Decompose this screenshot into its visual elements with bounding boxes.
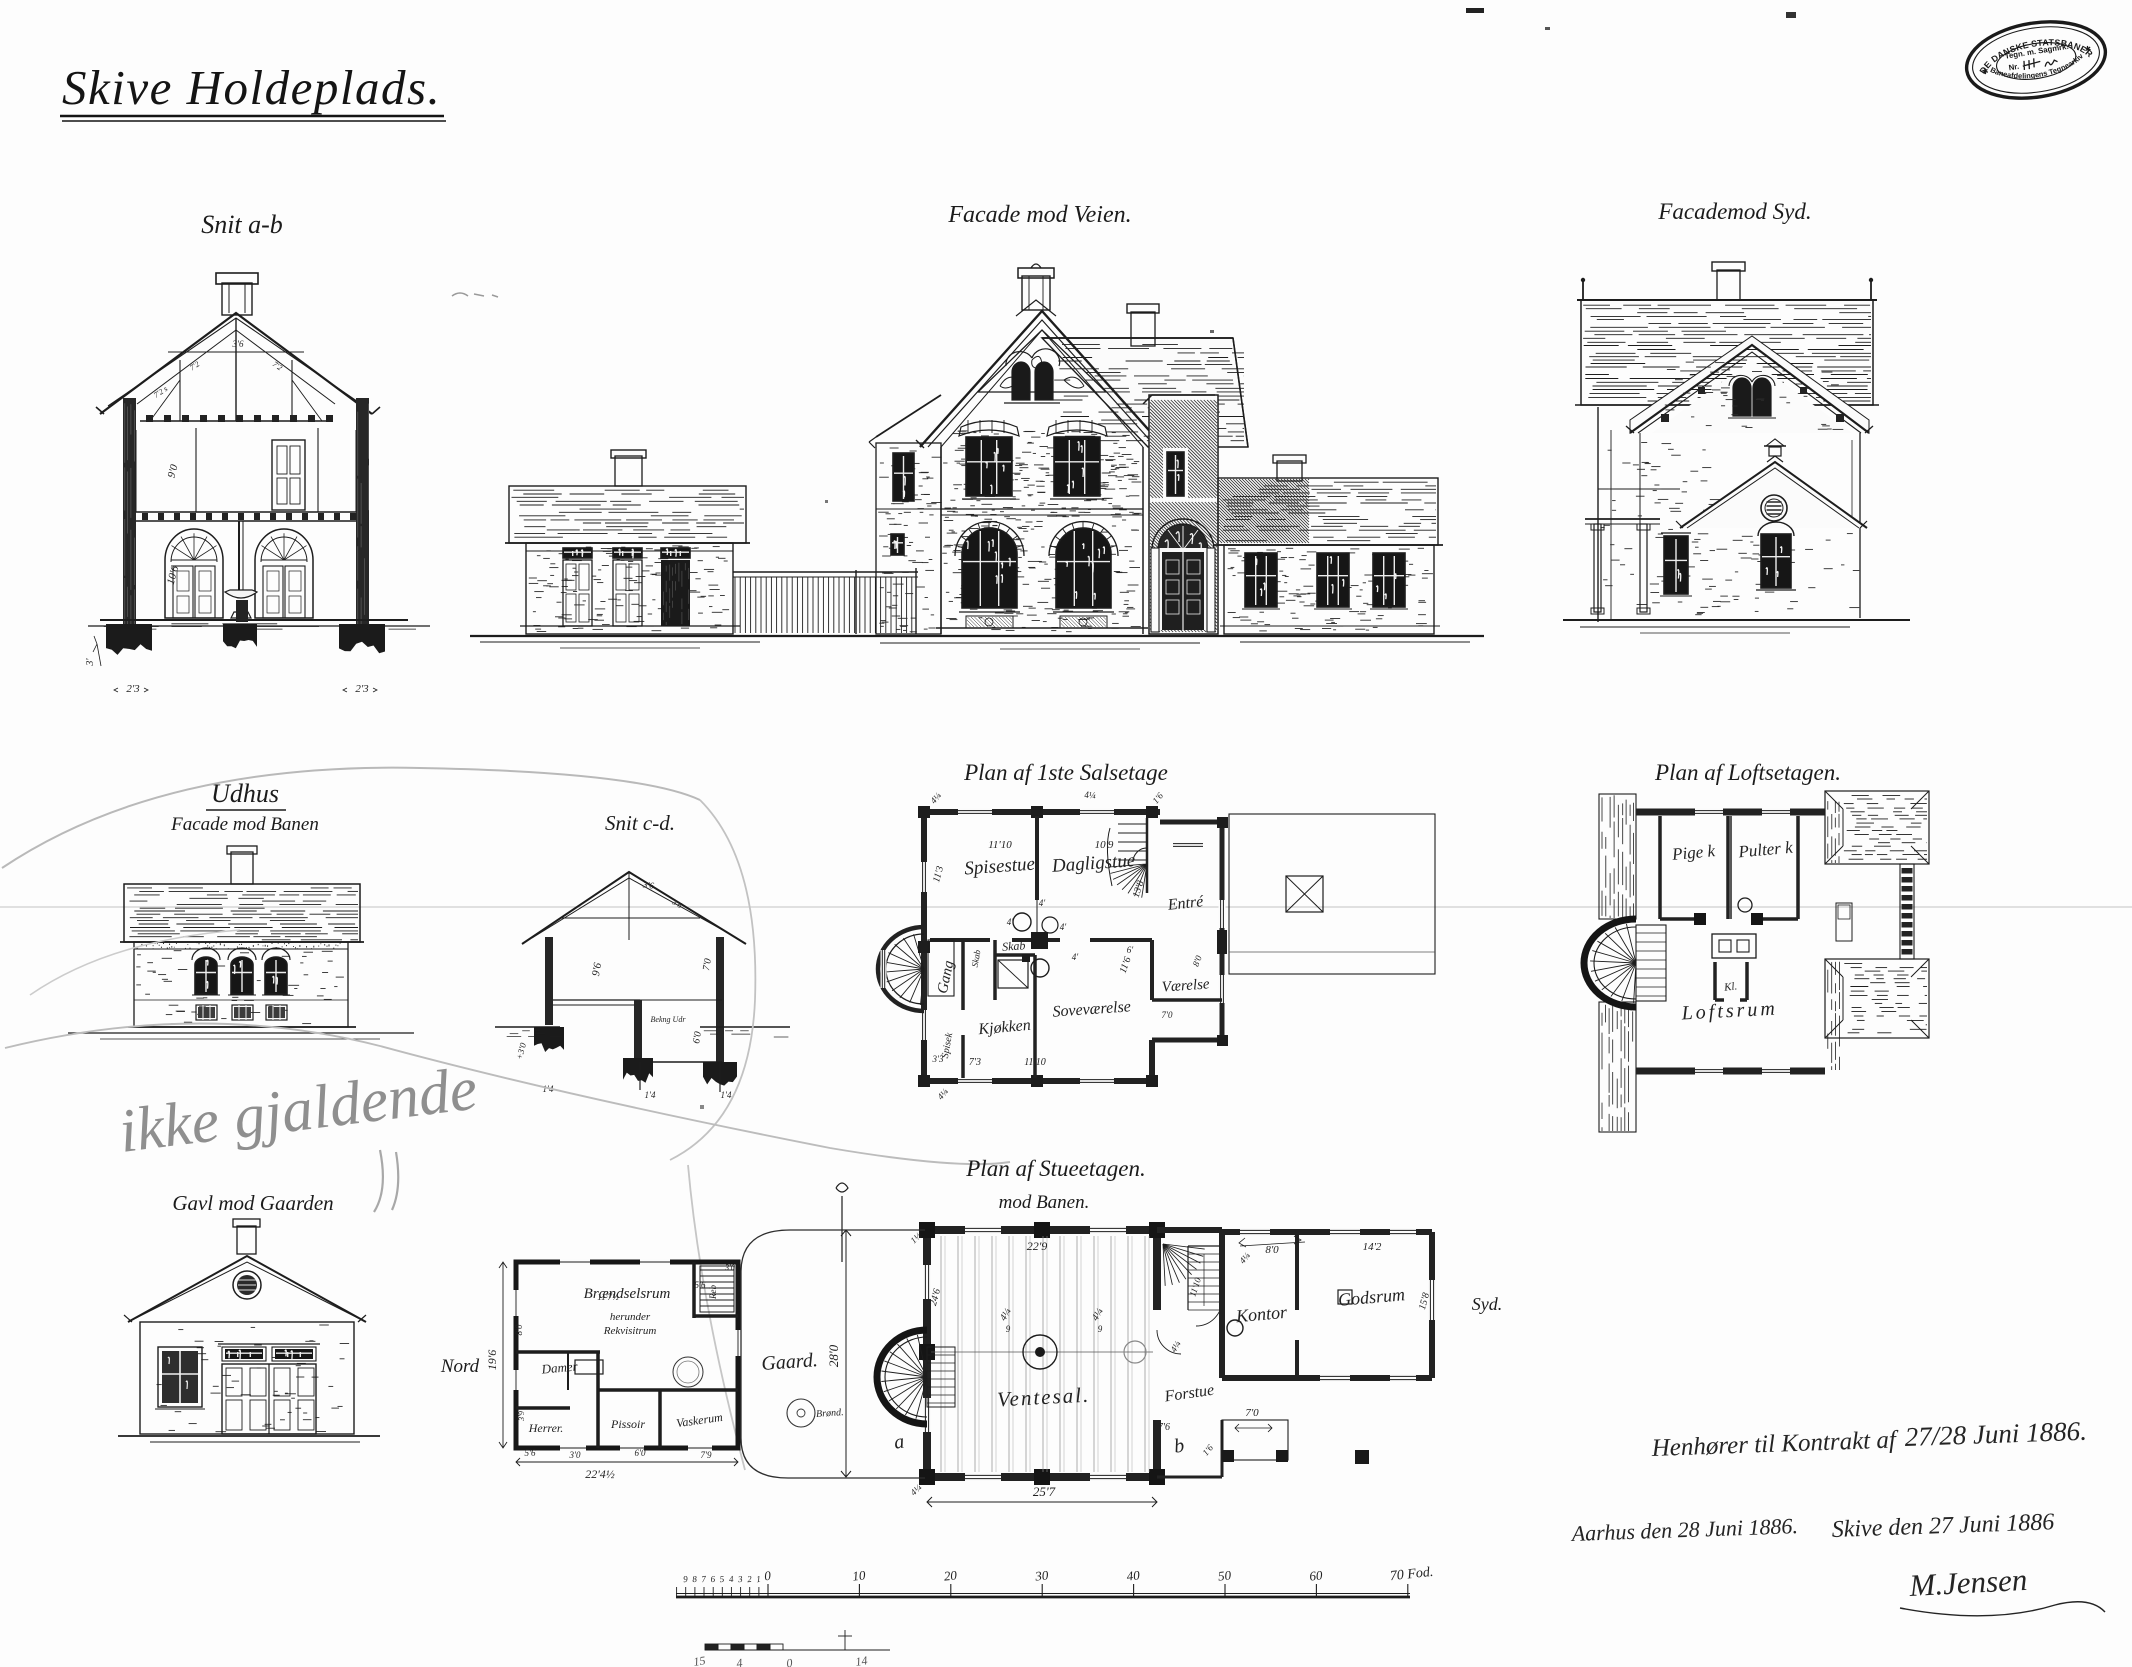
svg-text:Gaard.: Gaard. [761, 1349, 819, 1375]
svg-text:8'0: 8'0 [514, 1324, 524, 1335]
svg-text:Brønd.: Brønd. [816, 1407, 844, 1420]
svg-text:5'6: 5'6 [695, 1280, 706, 1290]
svg-text:1'4: 1'4 [721, 1090, 732, 1100]
svg-text:14: 14 [855, 1653, 869, 1667]
svg-text:3'3: 3'3 [932, 1054, 944, 1064]
svg-text:Snit c-d.: Snit c-d. [605, 811, 675, 835]
svg-text:7'0: 7'0 [1245, 1407, 1259, 1419]
svg-text:3'0: 3'0 [724, 1263, 735, 1272]
svg-text:10: 10 [852, 1567, 867, 1583]
svg-text:4': 4' [1060, 922, 1068, 932]
svg-text:6'0: 6'0 [691, 1031, 704, 1045]
svg-text:11'7½: 11'7½ [597, 1292, 619, 1302]
svg-text:M.Jensen: M.Jensen [1908, 1562, 2029, 1603]
svg-text:28'0: 28'0 [826, 1344, 841, 1367]
svg-text:Rekvisitrum: Rekvisitrum [603, 1325, 657, 1337]
svg-text:14'2: 14'2 [1363, 1241, 1382, 1253]
svg-text:Facade mod Banen: Facade mod Banen [170, 814, 319, 835]
svg-text:19'6: 19'6 [485, 1350, 499, 1371]
svg-text:30: 30 [1033, 1567, 1049, 1583]
svg-text:3'6: 3'6 [641, 879, 655, 891]
svg-text:Pige k: Pige k [1670, 841, 1716, 864]
svg-text:Syd.: Syd. [1472, 1294, 1503, 1314]
svg-text:27/28 Juni 1886.: 27/28 Juni 1886. [1904, 1416, 2087, 1452]
svg-text:10'9: 10'9 [1095, 839, 1114, 851]
svg-text:1'4: 1'4 [645, 1090, 656, 1100]
svg-text:mod Banen.: mod Banen. [999, 1192, 1090, 1213]
svg-text:11'10: 11'10 [988, 839, 1012, 851]
svg-text:Kl.: Kl. [1723, 980, 1738, 993]
svg-text:5'6: 5'6 [525, 1448, 536, 1458]
svg-text:3': 3' [85, 658, 96, 667]
svg-text:Herrer.: Herrer. [528, 1421, 564, 1435]
svg-text:7'3: 7'3 [969, 1057, 981, 1068]
svg-text:7'0: 7'0 [701, 958, 714, 972]
svg-text:4': 4' [1007, 917, 1015, 927]
svg-text:2'3: 2'3 [355, 683, 369, 695]
svg-text:6'0: 6'0 [635, 1448, 646, 1458]
svg-text:7'0: 7'0 [1162, 1010, 1173, 1020]
svg-text:Facade mod Veien.: Facade mod Veien. [947, 202, 1131, 228]
svg-text:9: 9 [1098, 1324, 1103, 1334]
svg-text:Plan af 1ste Salsetage: Plan af 1ste Salsetage [963, 760, 1168, 785]
svg-text:20: 20 [943, 1567, 958, 1583]
svg-text:9: 9 [1006, 1324, 1011, 1334]
svg-text:Pissoir: Pissoir [610, 1417, 645, 1431]
svg-text:Gavl mod Gaarden: Gavl mod Gaarden [172, 1191, 333, 1215]
svg-text:60: 60 [1309, 1567, 1324, 1583]
svg-text:11'10: 11'10 [1024, 1057, 1045, 1068]
svg-text:Skab: Skab [1002, 938, 1026, 954]
svg-text:Plan af Stueetagen.: Plan af Stueetagen. [965, 1156, 1146, 1181]
svg-text:8'0: 8'0 [1265, 1244, 1279, 1256]
svg-text:22'4½: 22'4½ [585, 1467, 615, 1481]
svg-text:Snit a-b: Snit a-b [201, 210, 283, 239]
svg-text:Bekng Udr: Bekng Udr [651, 1015, 687, 1024]
svg-text:2'3: 2'3 [126, 683, 140, 695]
svg-text:7'6: 7'6 [1158, 1422, 1170, 1433]
svg-text:50: 50 [1217, 1567, 1232, 1583]
svg-text:3'6: 3'6 [232, 339, 244, 349]
svg-text:3'0: 3'0 [569, 1450, 581, 1460]
svg-text:9'6: 9'6 [590, 961, 604, 977]
svg-text:Plan af Loftsetagen.: Plan af Loftsetagen. [1654, 760, 1841, 785]
svg-text:herunder: herunder [610, 1311, 651, 1323]
svg-text:Facademod Syd.: Facademod Syd. [1657, 199, 1811, 224]
svg-text:4': 4' [1072, 952, 1080, 962]
svg-text:25'7: 25'7 [1033, 1484, 1056, 1499]
svg-text:4¼: 4¼ [1084, 790, 1096, 800]
svg-text:Værelse: Værelse [1161, 976, 1210, 995]
svg-text:22'9: 22'9 [1027, 1239, 1048, 1253]
svg-text:Skive Holdeplads.: Skive Holdeplads. [62, 60, 441, 115]
svg-text:7'9: 7'9 [701, 1450, 712, 1460]
svg-text:6': 6' [1127, 945, 1135, 955]
svg-text:4': 4' [1039, 898, 1047, 908]
svg-text:Ventesal.: Ventesal. [996, 1383, 1090, 1412]
svg-text:Nr.: Nr. [2008, 62, 2020, 73]
svg-text:3'9: 3'9 [517, 1411, 526, 1422]
svg-text:40: 40 [1126, 1567, 1141, 1583]
svg-text:Nord: Nord [440, 1356, 480, 1377]
svg-text:Reb: Reb [708, 1285, 718, 1300]
svg-text:15: 15 [693, 1653, 707, 1667]
